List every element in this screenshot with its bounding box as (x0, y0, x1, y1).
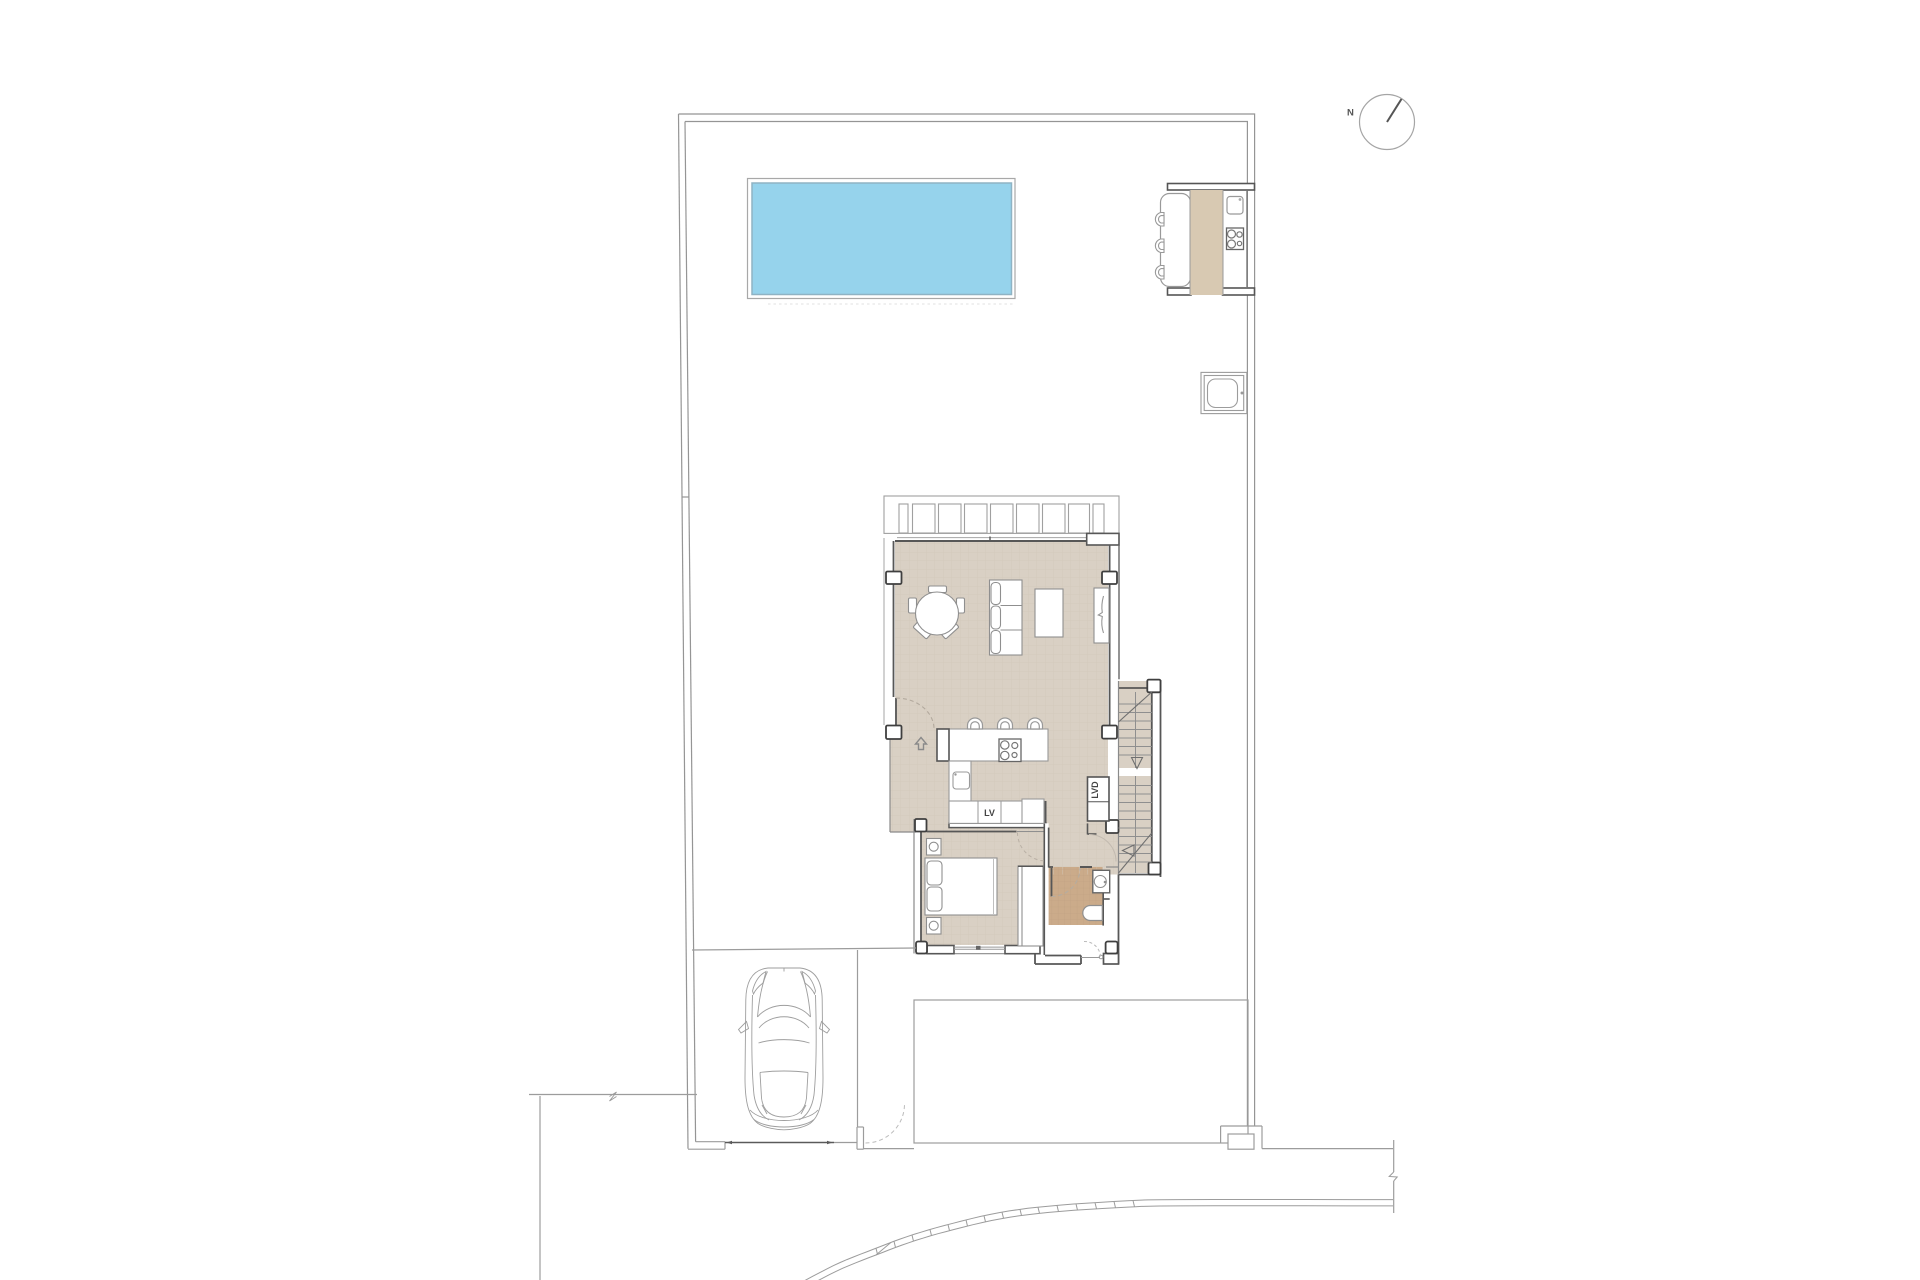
svg-text:N: N (1347, 108, 1354, 119)
svg-text:LVD: LVD (1090, 781, 1100, 799)
svg-text:LV: LV (984, 808, 995, 818)
